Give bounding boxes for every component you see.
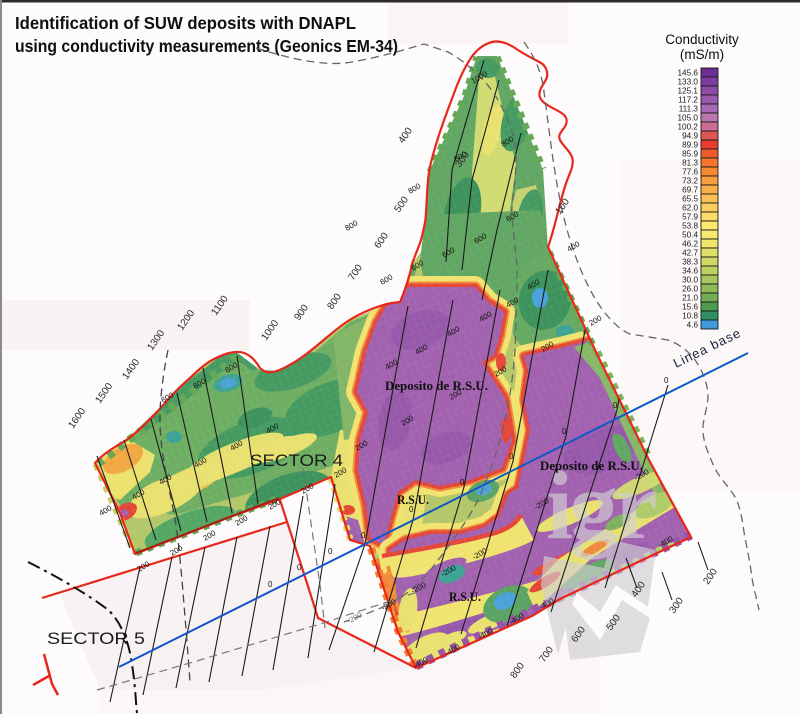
svg-text:77.6: 77.6 [682, 168, 698, 177]
svg-text:0: 0 [460, 478, 465, 487]
svg-text:94.9: 94.9 [682, 132, 698, 141]
svg-text:0: 0 [328, 547, 333, 556]
svg-text:145.6: 145.6 [678, 69, 699, 78]
svg-text:21.0: 21.0 [682, 294, 698, 303]
svg-text:34.6: 34.6 [682, 267, 698, 276]
svg-text:30.0: 30.0 [682, 276, 698, 285]
svg-text:0: 0 [562, 427, 567, 436]
svg-text:69.7: 69.7 [682, 186, 698, 195]
svg-text:53.8: 53.8 [682, 222, 698, 231]
svg-text:117.2: 117.2 [678, 96, 698, 105]
svg-text:R.S.U.: R.S.U. [449, 589, 481, 604]
svg-text:Identification of SUW deposits: Identification of SUW deposits with DNAP… [15, 13, 356, 33]
svg-text:SECTOR 4: SECTOR 4 [250, 452, 343, 470]
svg-text:111.3: 111.3 [679, 105, 699, 114]
svg-text:85.9: 85.9 [682, 150, 698, 159]
svg-text:0: 0 [613, 401, 618, 410]
svg-text:62.0: 62.0 [682, 204, 698, 213]
svg-text:133.0: 133.0 [678, 78, 699, 87]
svg-text:0: 0 [664, 376, 669, 385]
svg-text:42.7: 42.7 [682, 249, 698, 258]
svg-text:0: 0 [361, 531, 366, 540]
svg-text:26.0: 26.0 [682, 285, 698, 294]
svg-text:(mS/m): (mS/m) [680, 47, 724, 62]
svg-text:0: 0 [297, 563, 302, 572]
svg-text:0: 0 [268, 580, 273, 589]
svg-text:89.9: 89.9 [682, 141, 698, 150]
svg-text:81.3: 81.3 [682, 159, 698, 168]
svg-text:0: 0 [509, 452, 514, 461]
svg-text:38.3: 38.3 [682, 258, 698, 267]
svg-text:105.0: 105.0 [678, 114, 699, 123]
svg-text:SECTOR 5: SECTOR 5 [47, 630, 145, 648]
svg-text:using conductivity measurement: using conductivity measurements (Geonics… [15, 36, 398, 56]
svg-text:73.2: 73.2 [682, 177, 698, 186]
svg-text:4.6: 4.6 [687, 321, 699, 330]
svg-text:46.2: 46.2 [682, 240, 698, 249]
svg-text:65.5: 65.5 [682, 195, 698, 204]
svg-text:50.4: 50.4 [682, 231, 698, 240]
svg-text:15.6: 15.6 [682, 303, 698, 312]
svg-text:Deposito de R.S.U.: Deposito de R.S.U. [385, 378, 488, 393]
svg-text:100.2: 100.2 [678, 123, 699, 132]
svg-text:10.8: 10.8 [682, 312, 698, 321]
svg-text:57.9: 57.9 [682, 213, 698, 222]
svg-text:Deposito de R.S.U.: Deposito de R.S.U. [540, 458, 643, 473]
svg-text:Conductivity: Conductivity [665, 32, 739, 47]
svg-text:R.S.U.: R.S.U. [397, 492, 429, 507]
svg-text:125.1: 125.1 [678, 87, 699, 96]
